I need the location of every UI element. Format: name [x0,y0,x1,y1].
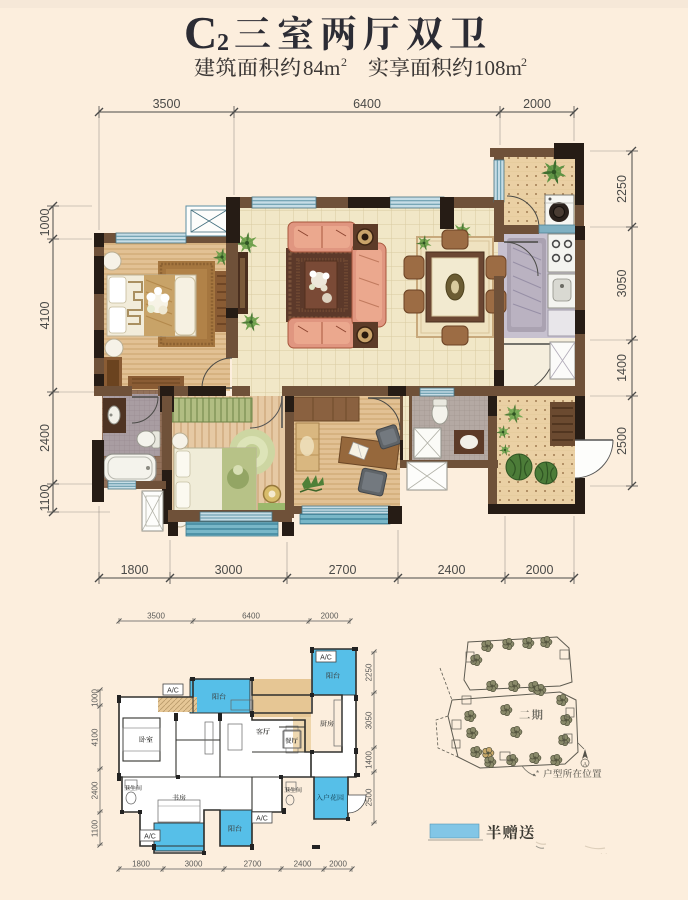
svg-text:· ·: · · [600,849,608,858]
svg-text:1400: 1400 [365,751,374,769]
svg-text:6400: 6400 [353,97,381,111]
svg-text:2250: 2250 [615,175,629,203]
svg-text:3500: 3500 [153,97,181,111]
svg-text:3000: 3000 [185,860,203,869]
svg-text:2400: 2400 [294,860,312,869]
svg-text:A/C: A/C [167,688,179,695]
svg-text:3050: 3050 [615,270,629,298]
svg-text:4100: 4100 [91,728,100,746]
svg-text:1400: 1400 [615,354,629,382]
svg-text:A/C: A/C [256,816,268,823]
svg-text:108m: 108m [474,56,522,80]
svg-text:2: 2 [217,30,229,56]
svg-text:2250: 2250 [365,663,374,681]
svg-text:2000: 2000 [523,97,551,111]
svg-text:2400: 2400 [91,781,100,799]
svg-text:1800: 1800 [132,860,150,869]
svg-text:2000: 2000 [329,860,347,869]
svg-text:A: A [583,762,588,768]
svg-text:2: 2 [341,55,347,69]
svg-text:84m: 84m [303,56,340,80]
svg-text:3500: 3500 [147,612,165,621]
svg-text:6400: 6400 [242,612,260,621]
svg-text:1100: 1100 [91,819,100,837]
svg-text:3050: 3050 [365,711,374,729]
svg-text:2700: 2700 [244,860,262,869]
svg-text:*: * [536,769,539,778]
svg-text:2400: 2400 [38,424,52,452]
svg-text:A/C: A/C [320,655,332,662]
svg-text:4100: 4100 [38,302,52,330]
svg-text:3000: 3000 [215,563,243,577]
svg-text:2400: 2400 [438,563,466,577]
svg-text:2: 2 [521,55,527,69]
svg-text:A/C: A/C [144,834,156,841]
svg-text:C: C [184,7,217,58]
svg-text:2000: 2000 [526,563,554,577]
svg-text:2500: 2500 [615,427,629,455]
svg-text:1800: 1800 [121,563,149,577]
svg-text:2000: 2000 [321,612,339,621]
svg-text:1000: 1000 [38,209,52,237]
svg-text:2700: 2700 [329,563,357,577]
svg-text:1000: 1000 [91,689,100,707]
svg-text:1100: 1100 [38,485,52,512]
